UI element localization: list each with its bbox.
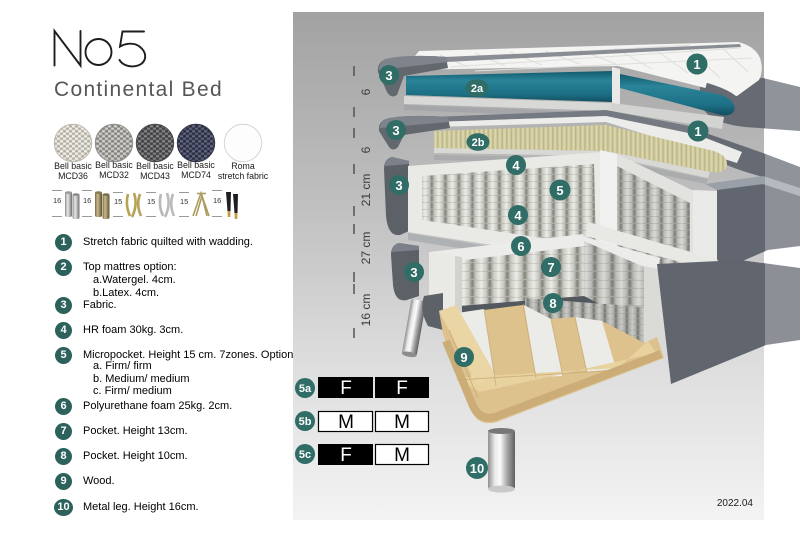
svg-text:M: M — [338, 412, 354, 433]
svg-text:3: 3 — [392, 123, 399, 138]
svg-text:10: 10 — [470, 461, 484, 476]
svg-text:8: 8 — [549, 296, 556, 311]
svg-text:7: 7 — [547, 260, 554, 275]
svg-text:3: 3 — [395, 178, 402, 193]
svg-text:1: 1 — [694, 124, 701, 139]
svg-text:2a: 2a — [471, 83, 484, 95]
svg-text:6: 6 — [359, 88, 373, 95]
svg-text:F: F — [396, 378, 408, 399]
svg-text:5b: 5b — [299, 416, 312, 428]
svg-text:4: 4 — [514, 208, 522, 223]
svg-text:2022.04: 2022.04 — [717, 498, 754, 509]
svg-text:16 cm: 16 cm — [359, 294, 373, 327]
svg-text:M: M — [394, 445, 410, 466]
svg-text:1: 1 — [693, 57, 700, 72]
svg-text:F: F — [340, 378, 352, 399]
svg-text:5: 5 — [556, 183, 563, 198]
svg-text:3: 3 — [410, 265, 417, 280]
svg-text:21 cm: 21 cm — [359, 174, 373, 207]
svg-text:2b: 2b — [472, 137, 485, 149]
svg-text:M: M — [394, 412, 410, 433]
svg-text:6: 6 — [359, 146, 373, 153]
svg-text:4: 4 — [512, 158, 520, 173]
svg-text:F: F — [340, 445, 352, 466]
svg-text:27 cm: 27 cm — [359, 232, 373, 265]
svg-text:6: 6 — [517, 239, 524, 254]
svg-text:9: 9 — [460, 350, 467, 365]
svg-text:5a: 5a — [299, 383, 312, 395]
svg-text:3: 3 — [385, 68, 392, 83]
svg-text:5c: 5c — [299, 449, 311, 461]
